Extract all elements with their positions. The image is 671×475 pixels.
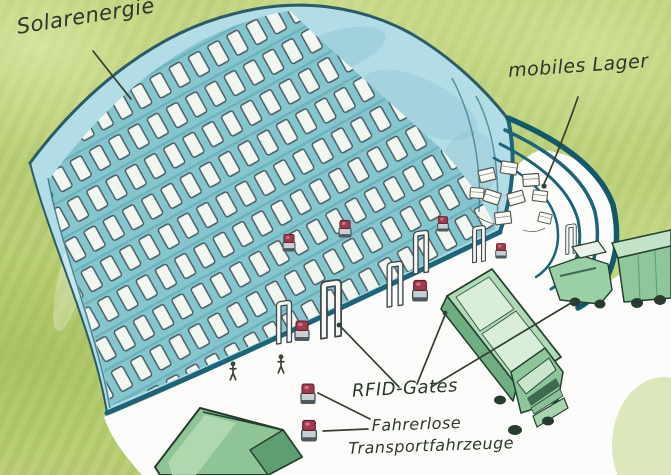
storage-box [523,173,540,186]
storage-box [470,187,484,198]
agv-robot [412,281,428,302]
agv-robot [495,244,506,259]
agv-robot [339,221,352,238]
illustration-stage: Solarenergie mobiles Lager RFID-Gates Fa… [0,0,671,475]
agv-robot [437,217,448,232]
agv-robot [295,321,310,341]
agv-robot [283,235,296,252]
storage-box [532,190,548,202]
agv-robot [301,384,316,404]
agv-robot [301,421,317,442]
storage-box [494,211,511,225]
label-fahrerlose-transportfahrzeuge: Fahrerlose Transportfahrzeuge [347,410,514,459]
storage-box [500,161,518,175]
